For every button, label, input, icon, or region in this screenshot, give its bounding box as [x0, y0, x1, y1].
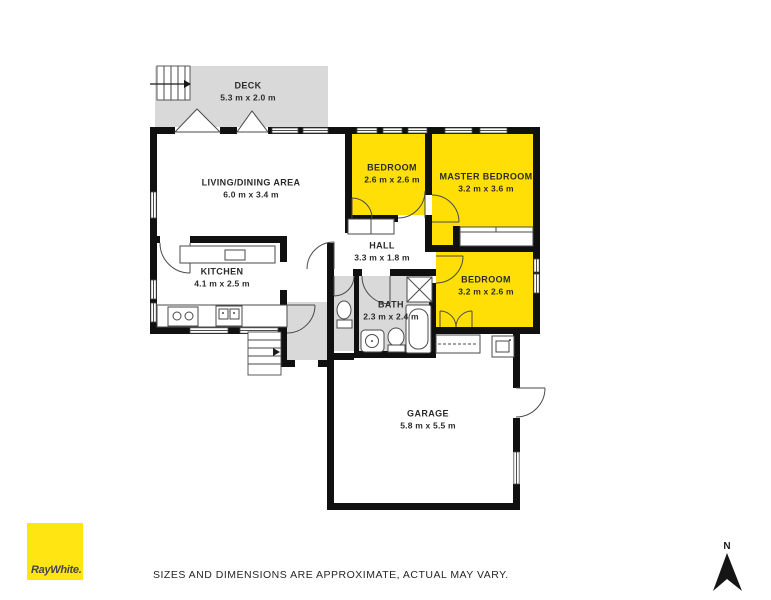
raywhite-logo-text: RayWhite.	[31, 564, 81, 576]
entry-steps	[248, 332, 281, 375]
north-arrow-icon	[704, 552, 750, 596]
disclaimer-text: SIZES AND DIMENSIONS ARE APPROXIMATE, AC…	[153, 569, 509, 581]
bathtub-icon	[406, 305, 431, 353]
wc-toilet-icon	[337, 301, 352, 328]
raywhite-logo: RayWhite.	[27, 523, 83, 580]
shower-icon	[407, 277, 432, 302]
bedroom-2-area	[436, 252, 533, 327]
bath-toilet-icon	[388, 328, 405, 352]
bedroom-1-area	[352, 134, 425, 215]
floor-plan-page: DECK 5.3 m x 2.0 m LIVING/DINING AREA 6.…	[0, 0, 771, 600]
north-label: N	[704, 541, 750, 552]
basin-icon	[361, 330, 384, 352]
hall-closet	[348, 219, 394, 234]
kitchen-sink-icon	[216, 306, 242, 326]
laundry-tub-icon	[492, 336, 514, 357]
laundry-bench	[436, 335, 480, 353]
stove-icon	[168, 307, 198, 326]
master-wardrobe	[460, 227, 533, 246]
compass: N	[704, 541, 750, 599]
kitchen-bench	[180, 246, 275, 263]
floor-plan-drawing	[0, 0, 771, 600]
entry-landing-area	[287, 302, 327, 360]
